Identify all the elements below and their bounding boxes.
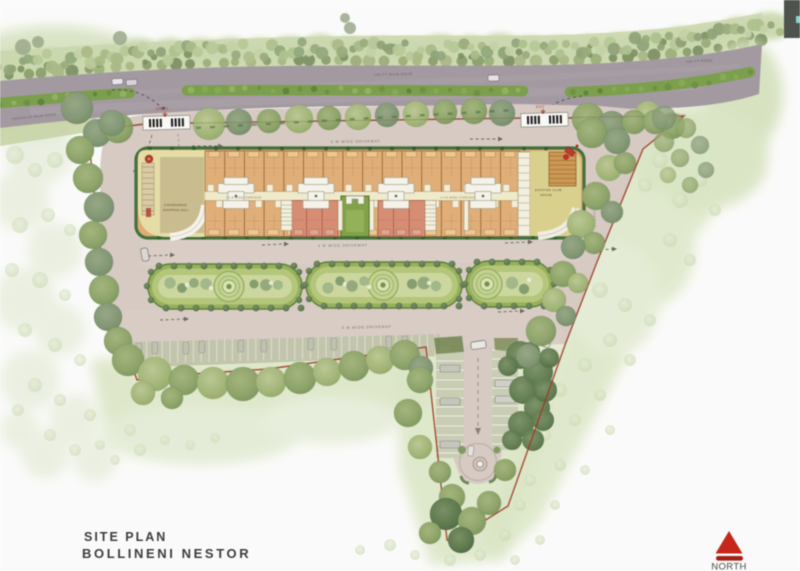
svg-text:2.4 M WIDE CORRIDOR: 2.4 M WIDE CORRIDOR <box>226 196 262 200</box>
svg-text:EXISTING CLUB: EXISTING CLUB <box>535 188 562 192</box>
svg-text:4 M WIDE DRIVEWAY: 4 M WIDE DRIVEWAY <box>318 243 368 248</box>
svg-text:SHOPPING HALL: SHOPPING HALL <box>163 208 189 212</box>
svg-text:SITE PLAN: SITE PLAN <box>84 530 167 544</box>
svg-text:NORTH: NORTH <box>711 562 747 571</box>
svg-text:6 M WIDE DRIVEWAY: 6 M WIDE DRIVEWAY <box>331 139 381 144</box>
svg-text:CONVENIENCE: CONVENIENCE <box>164 203 187 207</box>
svg-text:ENTRY: ENTRY <box>156 107 169 111</box>
svg-text:EXIT: EXIT <box>536 105 545 109</box>
svg-text:BOLLINENI NESTOR: BOLLINENI NESTOR <box>82 546 251 561</box>
svg-text:HOUSE: HOUSE <box>540 193 552 197</box>
svg-text:2.4 M WIDE CORRIDOR: 2.4 M WIDE CORRIDOR <box>440 196 476 200</box>
